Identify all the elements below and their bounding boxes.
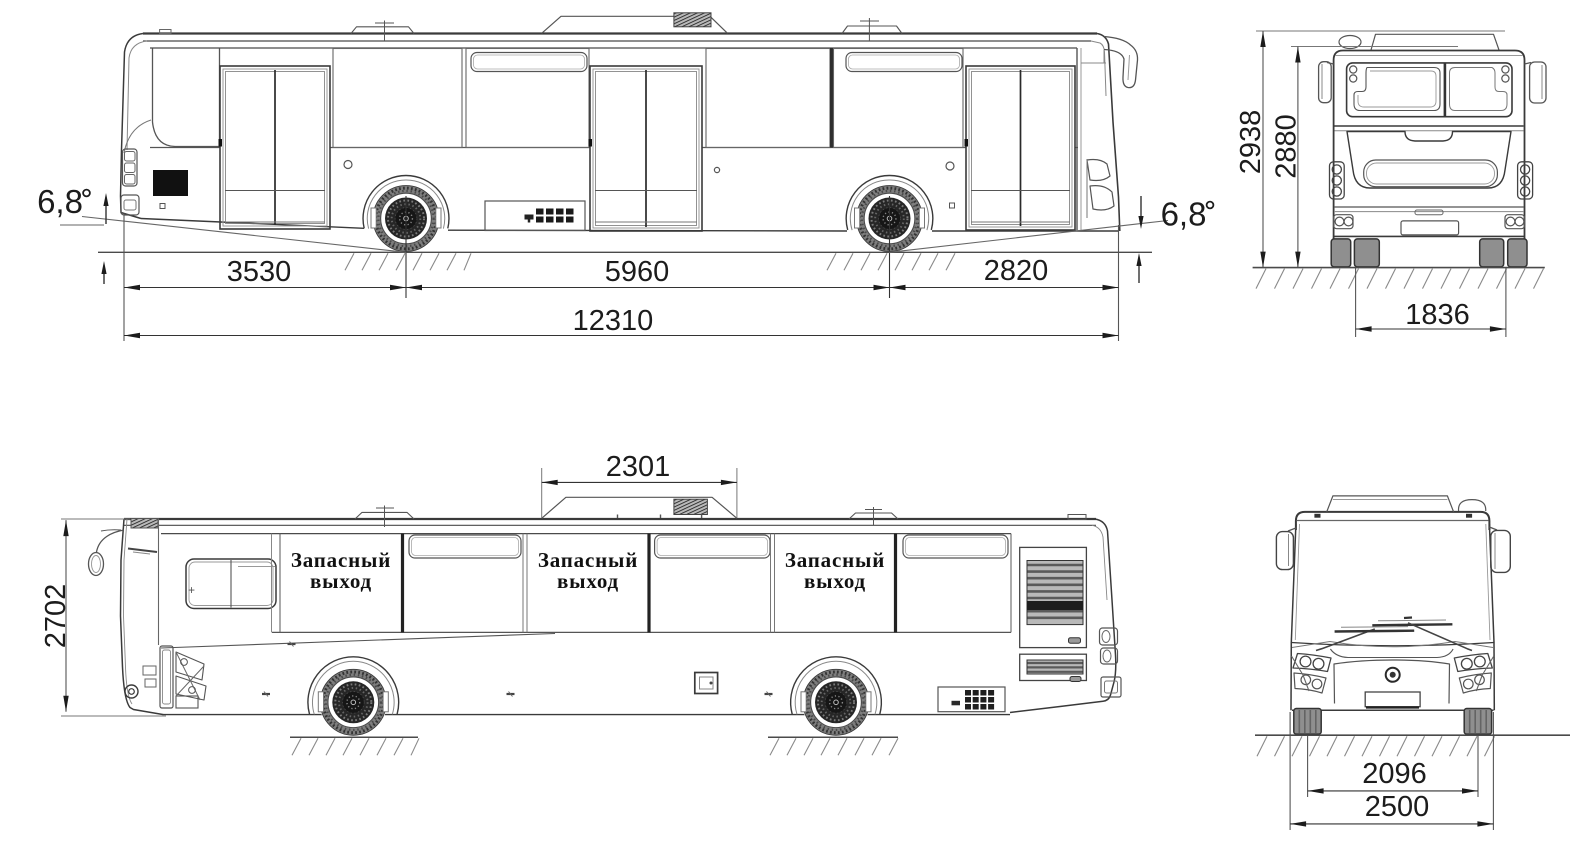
svg-text:5960: 5960 bbox=[605, 256, 670, 288]
svg-text:2096: 2096 bbox=[1362, 758, 1427, 790]
svg-text:2301: 2301 bbox=[606, 451, 671, 483]
svg-text:выход: выход bbox=[310, 569, 372, 593]
svg-text:6,8: 6,8 bbox=[1161, 196, 1207, 233]
svg-text:6,8: 6,8 bbox=[37, 183, 83, 220]
svg-text:выход: выход bbox=[557, 569, 619, 593]
svg-text:2880: 2880 bbox=[1271, 114, 1303, 179]
svg-text:2500: 2500 bbox=[1365, 791, 1430, 823]
svg-text:2938: 2938 bbox=[1235, 110, 1267, 175]
svg-text:выход: выход bbox=[804, 569, 866, 593]
svg-text:+: + bbox=[188, 583, 195, 597]
svg-text:3530: 3530 bbox=[227, 256, 292, 288]
svg-text:2702: 2702 bbox=[40, 584, 72, 649]
svg-text:12310: 12310 bbox=[573, 305, 654, 337]
svg-text:1836: 1836 bbox=[1405, 299, 1470, 331]
svg-text:2820: 2820 bbox=[984, 255, 1049, 287]
